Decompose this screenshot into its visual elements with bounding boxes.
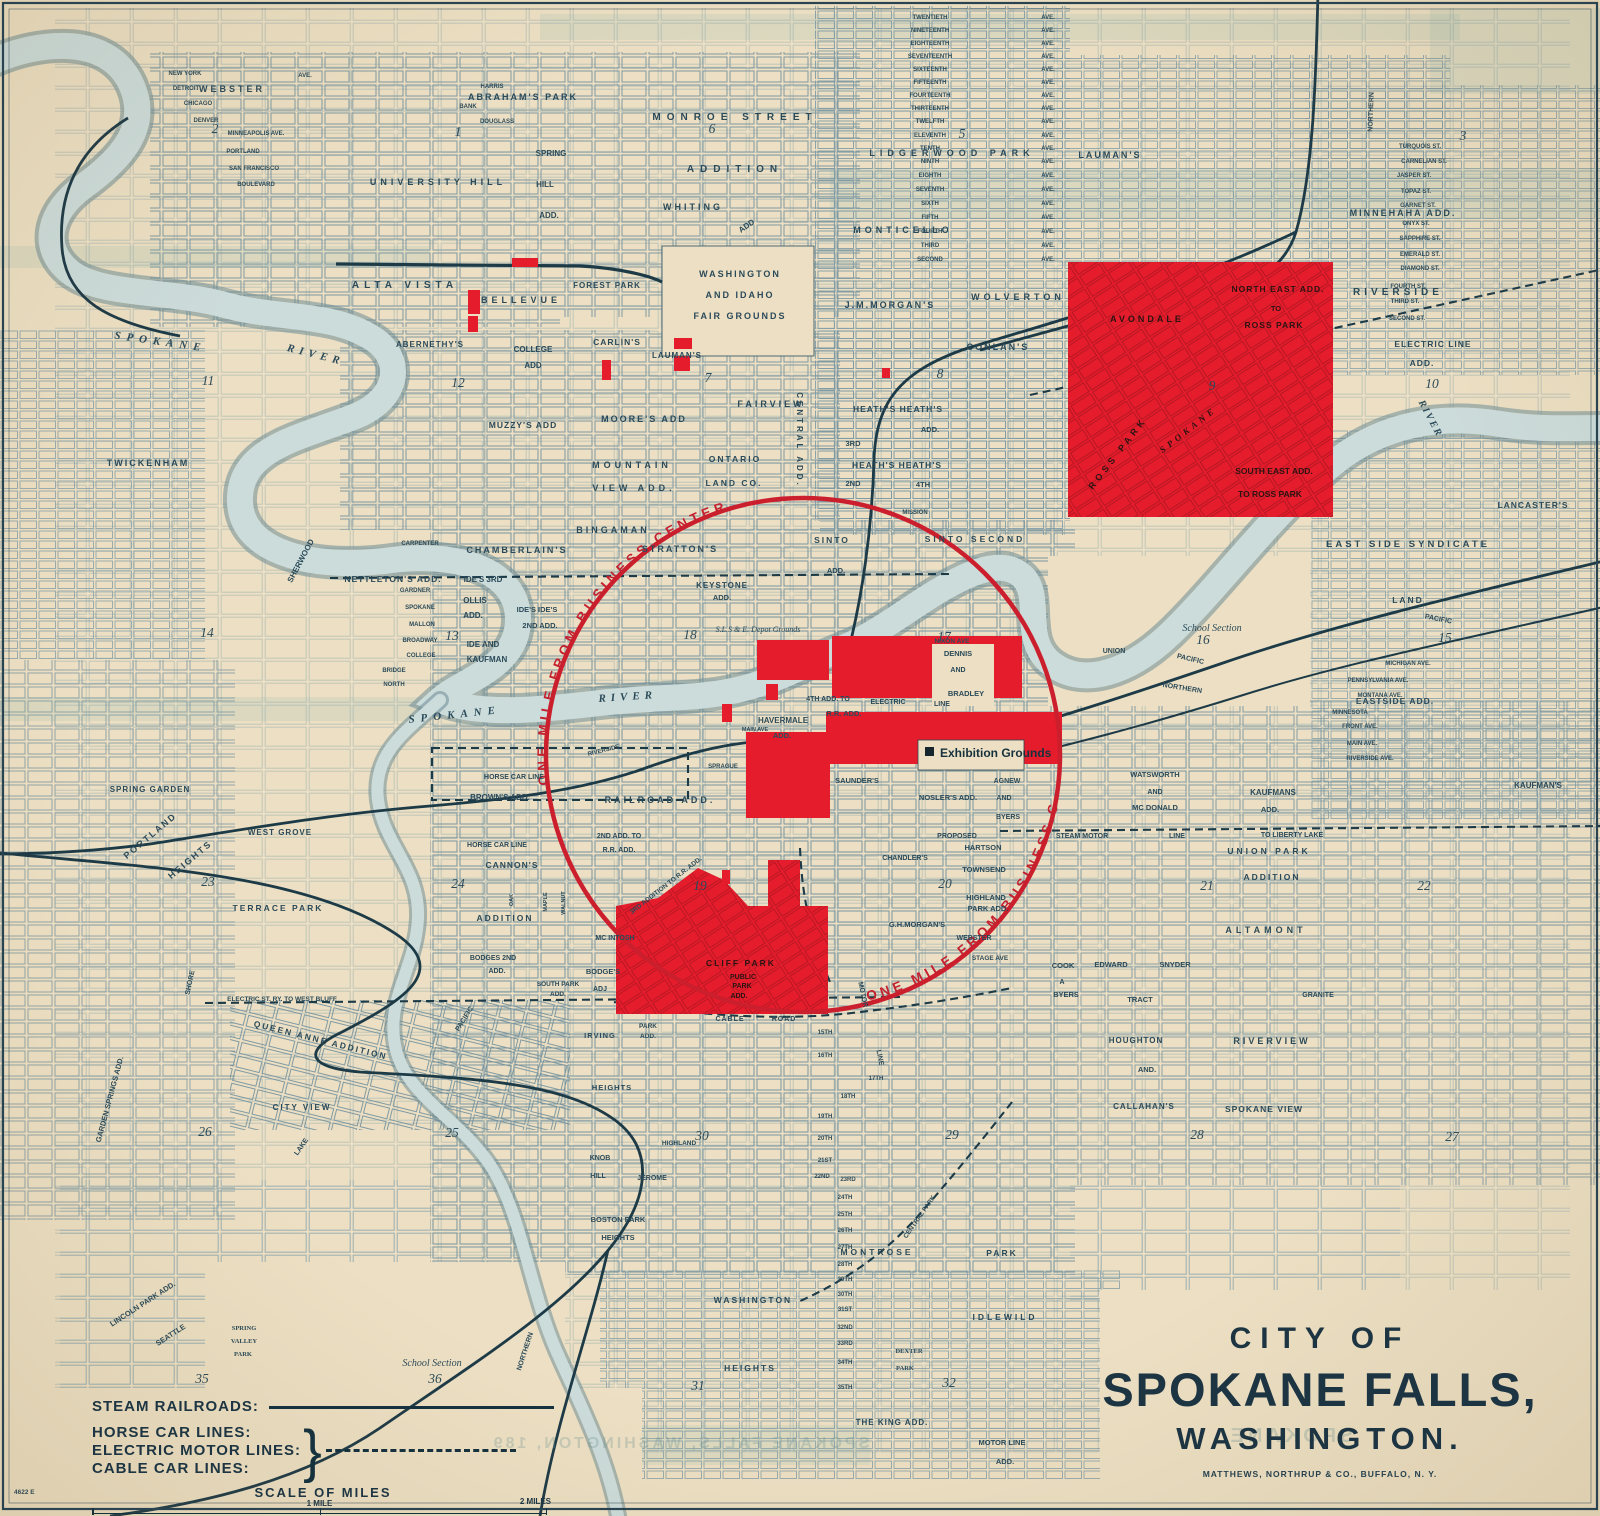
map-label: 23 [201, 874, 215, 889]
map-label: BELLEVUE [481, 295, 561, 305]
map-label: CARLIN'S [593, 337, 641, 347]
map-label: TURQUOIS ST. [1399, 144, 1441, 150]
map-label: 4TH ADD. TO [806, 696, 850, 703]
map-label: G.H.MORGAN'S [889, 920, 945, 929]
map-label: MC INTOSH [595, 935, 634, 942]
map-label: Exhibition Grounds [940, 746, 1052, 760]
map-label: LAUMAN'S [652, 351, 702, 360]
map-label: ADD [524, 361, 542, 370]
map-label: DEXTER [895, 1348, 922, 1355]
map-label: 36 [427, 1371, 442, 1386]
map-label: SAN FRANCISCO [229, 166, 279, 172]
map-label: MINNEAPOLIS AVE. [228, 131, 285, 137]
map-label: BYERS [1053, 990, 1079, 999]
map-label: 24TH [838, 1195, 853, 1201]
map-label: 26 [198, 1124, 212, 1139]
map-label: CARNELIAN ST. [1401, 159, 1447, 165]
map-label: PORTLAND [226, 149, 260, 155]
map-label: GRANITE [1302, 992, 1334, 999]
map-label: PARK [732, 983, 751, 990]
map-label: SEVENTH [916, 187, 944, 193]
map-label: 30TH [838, 1292, 853, 1298]
map-label: HEIGHTS [724, 1363, 776, 1373]
map-label: LINE [934, 701, 950, 708]
map-label: 19TH [818, 1114, 833, 1120]
map-label: School Section [1182, 623, 1241, 634]
map-label: WASHINGTON [699, 269, 781, 279]
map-label: HILL [590, 1173, 606, 1180]
map-label: 2ND ADD. [522, 621, 557, 630]
map-label: 29 [945, 1127, 959, 1142]
map-label: SIXTEENTH [913, 67, 947, 73]
map-label: BOULEVARD [237, 182, 275, 188]
map-label: BRIDGE [382, 668, 405, 674]
map-label: ADD. [1261, 805, 1279, 814]
map-label: LINE [1169, 833, 1185, 840]
map-label: MINNEHAHA ADD. [1350, 208, 1457, 218]
map-label: AND IDAHO [706, 290, 775, 300]
map-label: CHICAGO [184, 101, 213, 107]
map-label: KAUFMAN'S [1514, 781, 1562, 790]
map-label: KAUFMANS [1250, 788, 1296, 797]
map-label: AND. [1138, 1065, 1156, 1074]
map-label: 32 [941, 1375, 956, 1390]
map-label: SNYDER [1159, 960, 1191, 969]
map-label: HILL [536, 180, 554, 189]
map-label: ABRAHAM'S PARK [468, 92, 578, 102]
map-label: MICHIGAN AVE. [1385, 661, 1431, 667]
map-label: AVE. [1041, 28, 1055, 34]
map-label: 25TH [838, 1212, 853, 1218]
map-label: 27 [1445, 1129, 1460, 1144]
map-label: ADD. [730, 993, 747, 1000]
map-label: FIFTEENTH [914, 80, 947, 86]
map-label: ELECTRIC [871, 699, 906, 706]
map-label: MALLON [409, 622, 435, 628]
map-label: THIRTEENTH [911, 106, 949, 112]
map-label: AVE. [1041, 173, 1055, 179]
map-label: AND [996, 795, 1011, 802]
map-label: ADD. [713, 593, 731, 602]
map-label: NOSLER'S ADD. [919, 793, 977, 802]
map-label: ROAD [772, 1016, 797, 1023]
legend-cable-label: CABLE CAR LINES: [92, 1460, 301, 1478]
map-label: ADD. [640, 1033, 656, 1040]
map-label: TOPAZ ST. [1401, 189, 1431, 195]
map-label: NINTH [921, 159, 939, 165]
map-label: 31 [690, 1378, 705, 1393]
map-label: KAUFMAN [467, 655, 508, 664]
map-label: STEAM MOTOR [1056, 833, 1108, 840]
map-label: 11 [202, 373, 215, 388]
map-label: HARRIS [480, 84, 503, 90]
map-label: TWELFTH [916, 119, 945, 125]
map-label: BROADWAY [402, 638, 437, 644]
map-label: 17TH [869, 1076, 884, 1082]
map-label: IDE'S IDE'S [517, 605, 558, 614]
map-label: SINTO [814, 535, 850, 545]
map-label: PENNSYLVANIA AVE. [1348, 678, 1409, 684]
map-label: SPOKANE VIEW [1225, 1104, 1303, 1114]
map-label: OLLIS [463, 596, 487, 605]
map-label: MOORE'S ADD [601, 414, 687, 424]
map-label: ADJ [593, 986, 607, 993]
map-label: TWICKENHAM [107, 458, 190, 468]
map-label: AVE. [298, 73, 312, 79]
exhibition-grounds-marker [925, 747, 934, 756]
map-label: BYERS [996, 814, 1020, 821]
map-label: HAVERMALE [758, 716, 809, 725]
map-label: 32ND [837, 1325, 853, 1331]
map-label: GARNET ST. [1400, 203, 1436, 209]
map-label: UNION [1103, 648, 1126, 655]
map-label: A [1059, 979, 1064, 986]
map-label: SOUTH PARK [537, 981, 580, 988]
map-label: LAUMAN'S [1078, 150, 1141, 160]
map-label: MAIN AVE [742, 727, 769, 733]
map-label: SPRING GARDEN [110, 785, 191, 794]
map-label: J.M.MORGAN'S [845, 300, 936, 310]
map-label: ELECTRIC LINE [1394, 339, 1471, 349]
map-label: FOREST PARK [573, 281, 641, 290]
map-label: DOUGLASS [480, 119, 514, 125]
scale-bar: 1 MILE 2 MILES [92, 1501, 547, 1516]
map-label: ELEVENTH [914, 133, 946, 139]
map-label: FOURTEENTH [910, 93, 951, 99]
map-label: UNIVERSITY HILL [370, 177, 506, 187]
map-label: LIDGERWOOD PARK [869, 148, 1034, 158]
map-label: BRADLEY [948, 689, 984, 698]
map-label: ADDITION [1243, 872, 1300, 882]
map-label: ADD. [488, 968, 505, 975]
map-label: WHITING [663, 202, 723, 212]
map-label: TRACT [1127, 995, 1153, 1004]
map-label: ELECTRIC ST. RY. TO WEST BLUFF [227, 996, 337, 1003]
map-label: ROSS PARK [1245, 320, 1304, 330]
map-label: NEW YORK [169, 71, 203, 77]
map-label: HEATH'S HEATH'S [852, 460, 942, 470]
map-label: SECOND ST. [1389, 316, 1425, 322]
map-label: TERRACE PARK [233, 903, 324, 913]
map-label: 6 [709, 121, 716, 136]
map-label: MONTANA AVE. [1358, 693, 1403, 699]
map-label: WALNUT [561, 891, 567, 915]
map-label: 2ND [845, 479, 861, 488]
map-label: ALTA VISTA [352, 280, 458, 291]
map-label: 5 [959, 126, 966, 141]
map-label: HIGHLAND [662, 1140, 697, 1147]
map-label: 3 [1459, 128, 1467, 143]
map-label: FAIRVIEW [737, 399, 804, 409]
map-label: 14 [200, 625, 214, 640]
map-label: PARK [234, 1351, 252, 1358]
map-label: STRATTON'S [642, 544, 718, 554]
map-label: 33RD [837, 1341, 853, 1347]
map-label: 16TH [818, 1053, 833, 1059]
map-label: COLLEGE [406, 653, 435, 659]
map-label: ADD. [463, 611, 483, 620]
map-label: ADD. [550, 991, 566, 998]
map-label: 4622 E [14, 1489, 35, 1496]
map-label: THE KING ADD. [856, 1418, 929, 1427]
map-label: 2ND ADD. TO [597, 833, 642, 840]
map-label: 21ST [818, 1158, 833, 1164]
map-label: ADDITION [476, 913, 533, 923]
map-label: SPOKANE [405, 605, 435, 611]
map-label: EAST SIDE SYNDICATE [1326, 539, 1490, 550]
map-label: 31ST [838, 1307, 853, 1313]
map-label: CONLAN'S [967, 342, 1030, 352]
map-label: HORSE CAR LINE [467, 842, 527, 849]
map-label: EDWARD [1094, 960, 1128, 969]
map-label: VALLEY [231, 1338, 258, 1345]
title-washington: WASHINGTON. [1040, 1421, 1600, 1457]
map-label: School Section [402, 1358, 461, 1369]
map-label: BODGES 2ND [470, 955, 516, 962]
legend-brace: } [303, 1416, 322, 1484]
legend-steam-label: STEAM RAILROADS: [92, 1398, 259, 1416]
map-label: LAND [1392, 595, 1424, 605]
map-label: RIVERVIEW [1233, 1036, 1310, 1046]
map-label: MOUNTAIN [592, 460, 672, 470]
map-label: 29TH [838, 1277, 853, 1283]
map-label: HORSE CAR LINE [484, 774, 544, 781]
map-label: NINETEENTH [911, 28, 949, 34]
map-label: PARK [896, 1365, 914, 1372]
map-label: 25 [445, 1125, 459, 1140]
steam-line-sample [269, 1406, 554, 1409]
map-label: CITY VIEW [273, 1103, 332, 1112]
map-label: AVE. [1041, 133, 1055, 139]
map-label: ADD. [921, 425, 939, 434]
legend: STEAM RAILROADS: HORSE CAR LINES: ELECTR… [92, 1398, 554, 1516]
map-label: PARK [639, 1023, 657, 1030]
map-label: DIAMOND ST. [1401, 266, 1440, 272]
map-label: THIRD [921, 243, 940, 249]
map-label: NORTH [383, 682, 404, 688]
map-label: VIEW ADD. [592, 483, 675, 493]
scale-tick-end [546, 1508, 548, 1515]
map-label: TO LIBERTY LAKE [1261, 832, 1324, 839]
map-label: IDE'S 3RD [464, 575, 503, 584]
map-label: 1 [455, 124, 462, 139]
map-label: NETTLETON'S ADD. [344, 574, 441, 584]
map-label: OAK [509, 894, 515, 906]
map-label: ABERNETHY'S [396, 340, 464, 349]
legend-carlines-group: HORSE CAR LINES: ELECTRIC MOTOR LINES: C… [92, 1418, 554, 1483]
legend-electric-label: ELECTRIC MOTOR LINES: [92, 1442, 301, 1460]
map-label: SOUTH EAST ADD. [1235, 466, 1313, 476]
map-label: BINGAMAN [576, 525, 650, 535]
map-label: MISSION [902, 510, 927, 516]
map-label: 28TH [838, 1262, 853, 1268]
legend-horse-label: HORSE CAR LINES: [92, 1424, 301, 1442]
map-label: ONYX ST. [1402, 221, 1430, 227]
map-label: HIGHLAND [966, 893, 1006, 902]
map-label: BODGE'S [586, 967, 620, 976]
map-label: AND [950, 667, 965, 674]
map-label: ADD. [773, 731, 791, 740]
map-label: 18 [683, 627, 697, 642]
map-label: 15 [1438, 630, 1452, 645]
map-label: 10 [1425, 376, 1439, 391]
map-stage: ONE MILE FROM BUSINESS CENTER ONE MILE F… [0, 0, 1600, 1516]
map-label: DENVER [193, 118, 219, 124]
map-label: WATSWORTH [1130, 770, 1179, 779]
map-label: AVE. [1041, 93, 1055, 99]
map-label: HARTSON [964, 843, 1001, 852]
map-label: AVE. [1041, 67, 1055, 73]
map-label: LAND CO. [705, 478, 762, 488]
map-label: ADD. [1410, 358, 1435, 368]
map-label: AVE. [1041, 243, 1055, 249]
map-label: HOUGHTON [1109, 1036, 1164, 1045]
map-label: 12 [451, 375, 465, 390]
map-label: FAIR GROUNDS [693, 311, 786, 321]
map-label: BANK [459, 104, 477, 110]
map-label: KNOB [590, 1155, 611, 1162]
map-label: 28 [1190, 1127, 1204, 1142]
map-label: WEST GROVE [248, 828, 312, 837]
map-label: 26TH [838, 1228, 853, 1234]
map-label: 16 [1196, 632, 1210, 647]
map-label: SINTO SECOND [925, 534, 1026, 544]
map-label: ALTAMONT [1225, 925, 1306, 935]
map-label: STAGE AVE [972, 955, 1009, 962]
dashed-line-sample [326, 1449, 516, 1452]
map-label: TENTH [920, 146, 940, 152]
map-label: RAILROAD ADD. [605, 795, 716, 805]
map-label: 35 [194, 1371, 209, 1386]
map-label: NORTHERN [1367, 92, 1375, 132]
map-label: MAPLE [543, 892, 549, 912]
title-spokane-falls: SPOKANE FALLS, [1040, 1362, 1600, 1417]
map-label: ADD. [539, 211, 559, 220]
map-label: AVE. [1041, 229, 1055, 235]
map-label: SPRING [232, 1325, 257, 1332]
map-label: SEVENTEENTH [908, 54, 952, 60]
map-label: DETROIT [173, 86, 200, 92]
map-label: FOURTH ST. [1390, 284, 1426, 290]
map-label: DENNIS [944, 649, 972, 658]
map-label: LANCASTER'S [1497, 500, 1568, 510]
scale-one-mile: 1 MILE [307, 1499, 333, 1508]
map-label: FOURTH [918, 229, 943, 235]
map-label: PARK ADD. [968, 904, 1009, 913]
map-label: TWENTIETH [913, 15, 948, 21]
map-label: AVE. [1041, 146, 1055, 152]
map-label: 34TH [838, 1360, 853, 1366]
map-label: SECOND [917, 257, 943, 263]
map-label: WASHINGTON [714, 1295, 792, 1305]
map-label: CALLAHAN'S [1113, 1102, 1175, 1111]
map-label: THIRD ST. [1391, 299, 1420, 305]
map-label: WEBSTER [199, 84, 265, 94]
map-label: UNION PARK [1227, 846, 1310, 856]
map-label: 18TH [841, 1094, 856, 1100]
map-label: CHANDLER'S [882, 855, 928, 862]
map-label: EIGHTH [919, 173, 942, 179]
map-label: AVE. [1041, 54, 1055, 60]
map-label: JASPER ST. [1397, 173, 1432, 179]
publisher-credit: MATTHEWS, NORTHRUP & CO., BUFFALO, N. Y. [1040, 1469, 1600, 1479]
map-label: HEIGHTS [601, 1233, 634, 1242]
map-label: 21 [1200, 878, 1214, 893]
map-label: ONTARIO [709, 454, 762, 464]
map-label: 8 [937, 366, 944, 381]
legend-steam-row: STEAM RAILROADS: [92, 1398, 554, 1416]
map-label: AVE. [1041, 201, 1055, 207]
map-label: IRVING [584, 1031, 616, 1040]
map-label: 24 [451, 876, 465, 891]
map-label: CHAMBERLAIN'S [466, 545, 567, 555]
spokane-falls-map: ONE MILE FROM BUSINESS CENTER ONE MILE F… [0, 0, 1600, 1516]
map-label: COLLEGE [514, 345, 553, 354]
title-city-of: CITY OF [1040, 1322, 1600, 1356]
map-label: PARK [986, 1248, 1017, 1258]
map-label: SIXTH [921, 201, 939, 207]
map-label: AVE. [1041, 119, 1055, 125]
map-label: ADDITION [687, 164, 783, 175]
map-label: EIGHTEENTH [911, 41, 950, 47]
map-label: AND [1147, 789, 1162, 796]
map-label: 20TH [818, 1136, 833, 1142]
map-label: R.R. ADD. [826, 709, 861, 718]
map-label: AVE. [1041, 15, 1055, 21]
map-label: 9 [1209, 378, 1216, 393]
map-label: RIVERSIDE AVE. [1346, 756, 1394, 762]
map-label: GARDNER [400, 588, 431, 594]
map-label: CARPENTER [401, 541, 439, 547]
map-label: IDE AND [467, 640, 500, 649]
map-label: BOSTON PARK [591, 1215, 646, 1224]
map-label: 27TH [838, 1245, 853, 1251]
map-label: 20 [938, 876, 952, 891]
map-label: AVE. [1041, 80, 1055, 86]
map-label: CABLE [715, 1016, 744, 1023]
map-label: FIFTH [922, 215, 939, 221]
map-label: HEATH'S HEATH'S [853, 404, 943, 414]
map-label: 15TH [818, 1030, 833, 1036]
map-label: AVONDALE [1110, 314, 1184, 324]
map-label: TO ROSS PARK [1238, 489, 1303, 499]
map-label: AVE. [1041, 106, 1055, 112]
map-label: HEIGHTS [592, 1083, 632, 1092]
map-label: 35TH [838, 1385, 853, 1391]
map-label: R.R. ADD. [603, 847, 636, 854]
map-label: 13 [445, 628, 459, 643]
map-label: MINNESOTA [1332, 710, 1368, 716]
map-label: AVE. [1041, 257, 1055, 263]
map-label: SPRING [536, 149, 567, 158]
map-label: PUBLIC [730, 974, 756, 981]
map-label: SPRAGUE [708, 764, 738, 770]
map-label: MC DONALD [1132, 803, 1178, 812]
map-label: AVE. [1041, 159, 1055, 165]
map-label: 3RD [845, 439, 861, 448]
map-label: FRONT AVE. [1342, 724, 1378, 730]
map-label: MOTOR LINE [979, 1438, 1026, 1447]
map-label: NIXON AVE [934, 638, 970, 645]
map-label: MUZZY'S ADD [489, 420, 557, 430]
map-label: WEBSTER [957, 935, 992, 942]
map-label: AVE. [1041, 187, 1055, 193]
map-label: EMERALD ST. [1400, 252, 1440, 258]
map-label: AGNEW [994, 778, 1021, 785]
title-block: CITY OF SPOKANE FALLS, WASHINGTON. MATTH… [1040, 1322, 1600, 1479]
map-label: 22ND [814, 1174, 830, 1180]
scale-tick-start [92, 1508, 94, 1515]
